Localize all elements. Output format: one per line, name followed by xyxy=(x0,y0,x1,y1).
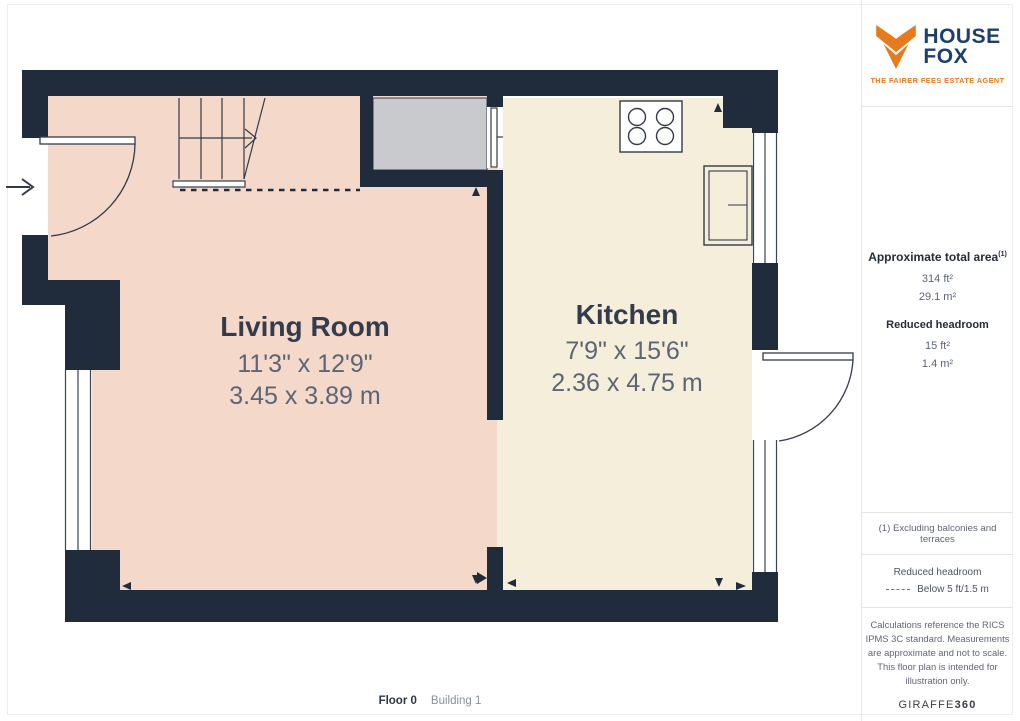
living-room-dims-imperial: 11'3" x 12'9" xyxy=(237,350,372,378)
disclaimer-text: Calculations reference the RICS IPMS 3C … xyxy=(865,618,1011,689)
area-summary-section: Approximate total area(1) 314 ft² 29.1 m… xyxy=(862,107,1013,513)
floorplan-drawing: Living Room 11'3" x 12'9" 3.45 x 3.89 m … xyxy=(0,0,860,721)
logo-word-house: HOUSE xyxy=(923,27,1000,46)
legend-title: Reduced headroom xyxy=(894,567,982,578)
window-left xyxy=(64,370,92,550)
legend-row: Below 5 ft/1.5 m xyxy=(886,584,989,595)
legend-value: Below 5 ft/1.5 m xyxy=(917,584,989,595)
fox-icon xyxy=(874,22,918,72)
total-area-m: 29.1 m² xyxy=(919,291,956,303)
entry-arrow-icon xyxy=(6,179,33,195)
total-area-ft: 314 ft² xyxy=(922,273,953,285)
stove-icon xyxy=(620,101,682,152)
window-kitchen-bottom xyxy=(752,440,778,572)
back-door xyxy=(752,350,853,441)
reduced-headroom-m: 1.4 m² xyxy=(922,358,953,370)
total-area-title-text: Approximate total area xyxy=(868,250,998,264)
floorplan-page: Living Room 11'3" x 12'9" 3.45 x 3.89 m … xyxy=(0,0,1020,721)
footnote-section: (1) Excluding balconies and terraces xyxy=(862,513,1013,555)
giraffe360-brand: GIRAFFE360 xyxy=(898,699,976,711)
building-label: Building 1 xyxy=(431,695,482,707)
kitchen-dims-imperial: 7'9" x 15'6" xyxy=(565,337,688,365)
room-label-living-room: Living Room 11'3" x 12'9" 3.45 x 3.89 m xyxy=(220,311,390,410)
reduced-headroom-ft: 15 ft² xyxy=(925,340,950,352)
total-area-title: Approximate total area(1) xyxy=(868,250,1007,264)
logo-wordmark: HOUSE FOX xyxy=(923,27,1000,66)
living-room-name: Living Room xyxy=(220,311,390,342)
giraffe-360: 360 xyxy=(955,699,977,711)
reduced-headroom-title: Reduced headroom xyxy=(886,319,989,331)
footer: Floor 0 Building 1 xyxy=(0,695,860,707)
logo-section: HOUSE FOX THE FAIRER FEES ESTATE AGENT xyxy=(862,0,1013,107)
logo-word-fox: FOX xyxy=(923,47,1000,66)
window-kitchen-top xyxy=(752,133,778,263)
giraffe-text: GIRAFFE xyxy=(898,699,954,711)
sidebar: HOUSE FOX THE FAIRER FEES ESTATE AGENT A… xyxy=(861,0,1013,721)
dashed-line-swatch xyxy=(886,589,910,590)
footnote-text: (1) Excluding balconies and terraces xyxy=(862,523,1013,545)
floor-label: Floor 0 xyxy=(379,695,417,707)
living-room-dims-metric: 3.45 x 3.89 m xyxy=(229,382,380,410)
understairs-landing-area xyxy=(373,98,487,170)
logo-tagline: THE FAIRER FEES ESTATE AGENT xyxy=(870,76,1004,85)
disclaimer-section: Calculations reference the RICS IPMS 3C … xyxy=(862,608,1013,721)
kitchen-name: Kitchen xyxy=(576,299,679,330)
total-area-footnote-marker: (1) xyxy=(998,251,1007,258)
landing-kitchen-door xyxy=(487,107,503,168)
legend-section: Reduced headroom Below 5 ft/1.5 m xyxy=(862,555,1013,608)
outside-area xyxy=(22,305,65,622)
kitchen-dims-metric: 2.36 x 4.75 m xyxy=(551,369,702,397)
